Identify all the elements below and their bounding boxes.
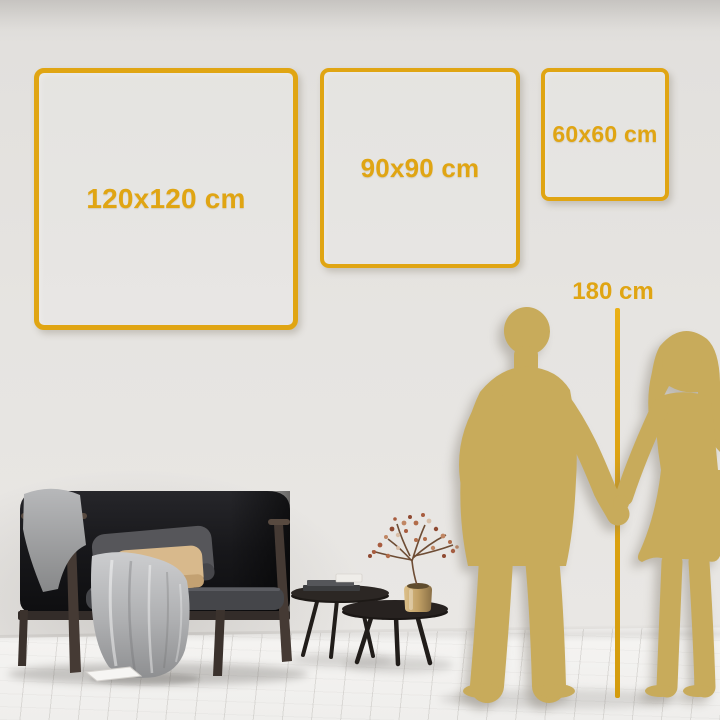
size-guide-image: 120x120 cm 90x90 cm 60x60 cm <box>0 0 720 720</box>
man-silhouette-icon <box>460 303 627 698</box>
couple-silhouettes <box>0 0 720 720</box>
